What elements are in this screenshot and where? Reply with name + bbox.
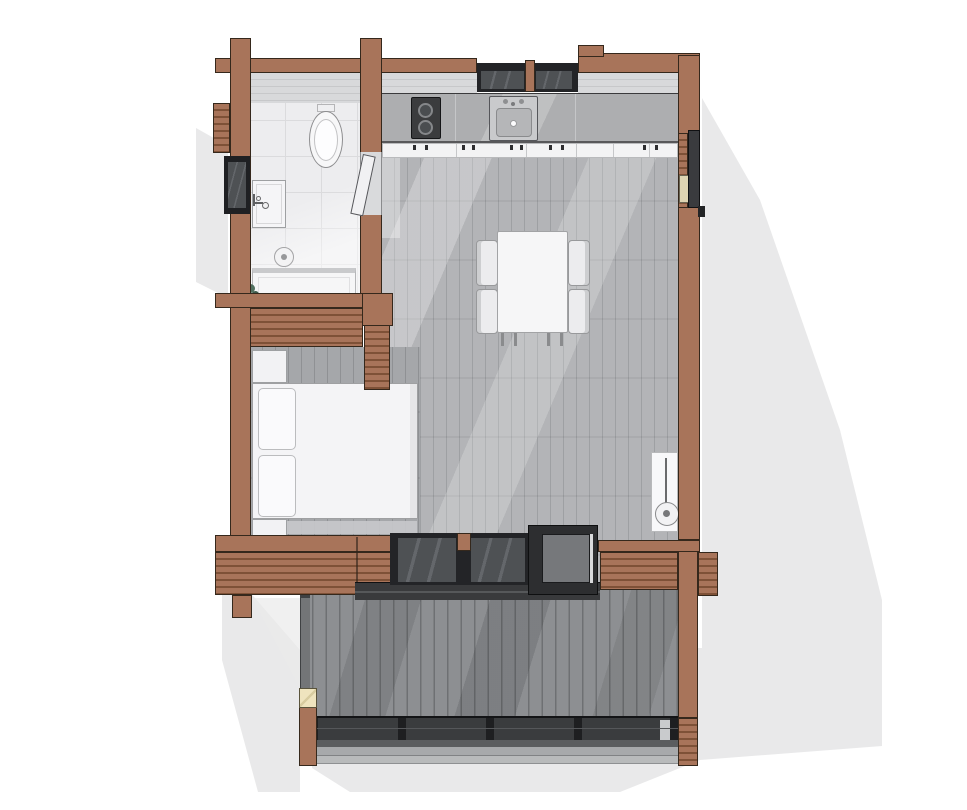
living-floor xyxy=(382,143,678,585)
east-deck-post xyxy=(678,540,698,718)
south-window-mullion xyxy=(457,533,471,551)
north-window-pane-left xyxy=(481,71,524,89)
cabinet-handle xyxy=(510,145,513,150)
dining-chair-2 xyxy=(476,289,498,334)
cabinet-handle xyxy=(549,145,552,150)
cabinet-handle xyxy=(643,145,646,150)
basin-faucet-head xyxy=(262,202,269,209)
cabinet-divider xyxy=(613,144,614,157)
dining-chair-4 xyxy=(568,289,590,334)
west-wall-stub xyxy=(232,595,252,618)
nightstand-1 xyxy=(252,350,287,383)
west-window-pane xyxy=(228,162,246,208)
counter-seam-2 xyxy=(575,94,576,141)
table-leg-4 xyxy=(560,333,563,346)
sink-drain xyxy=(510,120,517,127)
bathroom-sink-rim xyxy=(256,184,282,224)
lamp-base-dot xyxy=(663,510,670,517)
basin-faucet-knob xyxy=(256,196,261,201)
cabinet-handle xyxy=(462,145,465,150)
kitchen-wall-face-right xyxy=(578,73,678,93)
railing-post-1 xyxy=(398,718,406,740)
north-window-mullion xyxy=(525,60,535,92)
kitchen-sink xyxy=(489,96,538,141)
counter-seam-1 xyxy=(455,94,456,141)
basin-faucet-pipe-v xyxy=(253,194,255,206)
shower-drain-dot xyxy=(281,254,287,260)
wall-junction-stub xyxy=(364,325,390,390)
wall-south-right-face xyxy=(600,552,678,590)
table-leg-3 xyxy=(547,333,550,346)
cabinet-divider xyxy=(649,144,650,157)
floor-plan-canvas xyxy=(0,0,967,810)
wall-north-left xyxy=(215,58,477,73)
entry-platform-sliver xyxy=(590,534,593,583)
wall-south-left-cap xyxy=(215,535,392,552)
wall-east xyxy=(678,55,700,540)
table-leg-1 xyxy=(501,333,504,346)
kitchen-cabinets xyxy=(382,143,678,158)
wall-south-right-cap xyxy=(598,540,700,552)
pillow-1 xyxy=(258,388,296,450)
toilet-bowl-rim xyxy=(314,119,338,161)
deck-railing xyxy=(308,716,678,740)
bathroom-wall-face xyxy=(250,73,360,103)
deck-step-edge xyxy=(308,740,678,747)
cabinet-handle xyxy=(520,145,523,150)
west-window-frame xyxy=(224,156,250,214)
railing-rail-line xyxy=(308,728,678,729)
faucet-knob-right xyxy=(519,99,524,104)
east-door-handle xyxy=(698,206,705,217)
bathroom-sink xyxy=(252,180,286,228)
deck-post-left-body xyxy=(299,706,317,766)
pillow-2 xyxy=(258,455,296,517)
south-window-pane-left xyxy=(398,538,456,582)
cabinet-handle xyxy=(425,145,428,150)
burner-1 xyxy=(418,103,433,118)
dining-table xyxy=(497,231,568,333)
dining-chair-1 xyxy=(476,240,498,286)
east-entry-door xyxy=(688,130,700,208)
cabinet-handle xyxy=(472,145,475,150)
cabinet-divider xyxy=(576,144,577,157)
east-wall-log-ends xyxy=(698,552,718,596)
east-post-log-ends xyxy=(678,718,698,766)
wall-north-right-notch xyxy=(578,45,604,57)
railing-post-2 xyxy=(486,718,494,740)
north-window-pane-right xyxy=(536,71,572,89)
table-leg-2 xyxy=(514,333,517,346)
wall-bath-bedroom-face xyxy=(250,308,363,347)
deck-step-2 xyxy=(308,756,678,764)
entry-platform xyxy=(528,525,598,595)
dining-chair-3 xyxy=(568,240,590,286)
railing-cap-right xyxy=(670,718,678,740)
railing-post-3 xyxy=(574,718,582,740)
cabinet-handle xyxy=(413,145,416,150)
cabinet-divider xyxy=(456,144,457,157)
living-floor-highlight xyxy=(382,158,400,238)
cooktop xyxy=(411,97,441,139)
cabinet-handle xyxy=(655,145,658,150)
burner-2 xyxy=(418,120,433,135)
deck-step-1 xyxy=(308,747,678,756)
south-window-pane-right xyxy=(471,538,525,582)
west-log-ends xyxy=(213,103,230,153)
cabinet-handle xyxy=(561,145,564,150)
wall-junction-post xyxy=(362,293,393,326)
entry-platform-inner xyxy=(542,534,590,583)
faucet-spout xyxy=(511,102,515,106)
kitchen-wall-face-left xyxy=(382,73,477,93)
deck-post-left-cap xyxy=(299,688,317,708)
cabinet-divider xyxy=(526,144,527,157)
faucet-knob-left xyxy=(503,99,508,104)
